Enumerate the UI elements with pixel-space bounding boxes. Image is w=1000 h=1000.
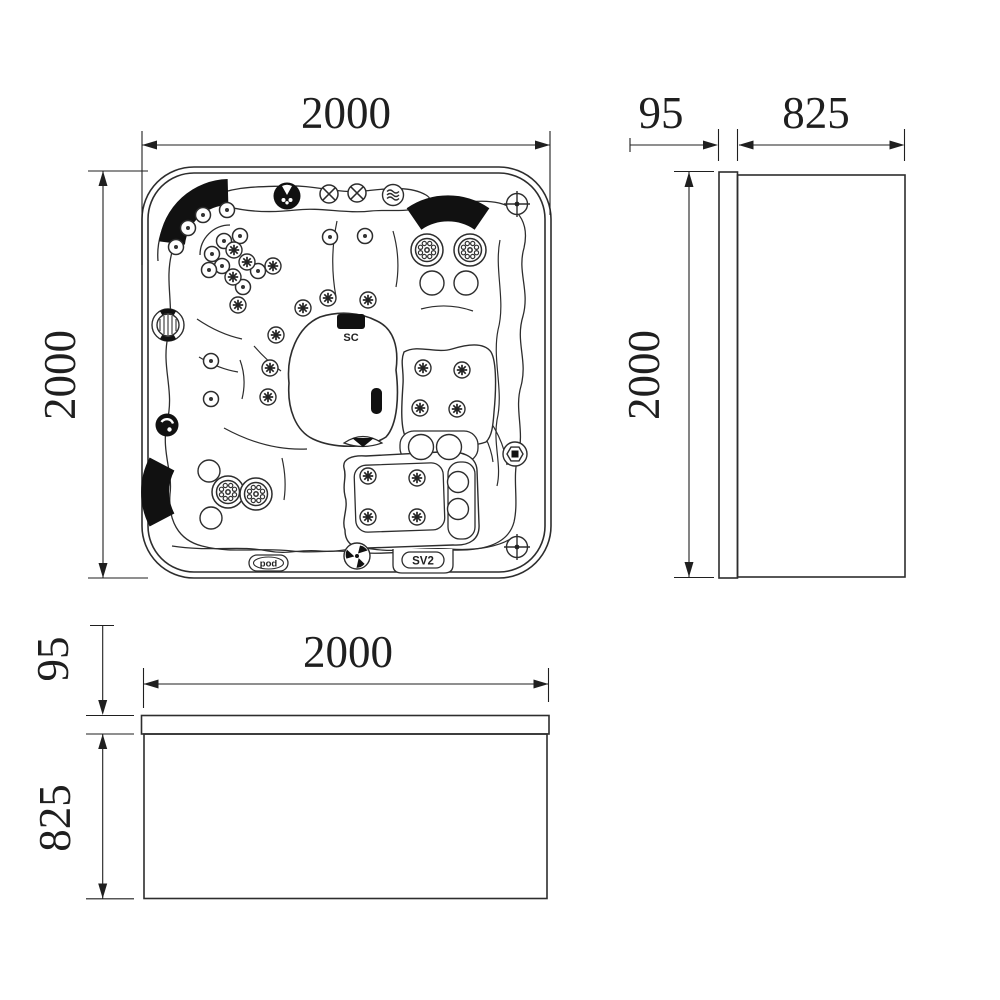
dim-label-top-length: 2000 <box>35 330 85 420</box>
massage-jet-icon <box>205 247 220 262</box>
dim-label-top-width: 2000 <box>301 88 391 138</box>
control-panel <box>337 314 365 329</box>
air-jet-icon <box>239 254 255 270</box>
air-jet-icon <box>225 269 241 285</box>
massage-jet-icon <box>233 229 248 244</box>
cabinet-profile <box>738 175 906 577</box>
speaker-icon <box>274 183 301 210</box>
front-view: 2000 95 825 <box>28 626 549 899</box>
air-valve-icon <box>320 185 338 203</box>
massage-jet-icon <box>202 263 217 278</box>
massage-jet-icon <box>358 229 373 244</box>
corner-screw-icon <box>504 191 530 217</box>
dim-side-length: 2000 <box>619 172 714 578</box>
dim-label-front-width: 2000 <box>303 627 393 677</box>
dim-top-width: 2000 <box>142 88 550 265</box>
headrest-pillow <box>155 464 162 520</box>
dim-front-rim: 95 <box>28 626 134 735</box>
air-jet-icon <box>265 258 281 274</box>
rotary-jet-icon <box>454 234 486 266</box>
massage-jet-icon <box>196 208 211 223</box>
dim-front-width: 2000 <box>144 627 549 708</box>
dim-label-side-rim: 95 <box>639 88 684 138</box>
air-valve-icon <box>348 184 366 202</box>
plain-jet-icon <box>448 499 469 520</box>
rotary-jet-icon <box>411 234 443 266</box>
air-jet-icon <box>409 509 425 525</box>
massage-jet-icon <box>204 392 219 407</box>
rim-profile <box>719 172 738 578</box>
plain-jet-icon <box>448 472 469 493</box>
waterfall-control-icon <box>383 185 404 206</box>
recliner-seat-outline <box>402 345 496 446</box>
air-jet-icon <box>412 400 428 416</box>
air-jet-icon <box>454 362 470 378</box>
dim-label-front-rim: 95 <box>28 637 78 682</box>
cabinet-front <box>144 734 547 899</box>
plain-jet-icon <box>198 460 220 482</box>
air-jet-icon <box>415 360 431 376</box>
air-jet-icon <box>260 389 276 405</box>
side-view: 95 825 2000 <box>619 88 905 578</box>
side-control <box>371 388 382 414</box>
air-jet-icon <box>230 297 246 313</box>
drain-fitting-icon <box>503 442 527 466</box>
dim-label-side-length: 2000 <box>619 330 669 420</box>
massage-jet-icon <box>204 354 219 369</box>
rotary-jet-icon <box>240 478 272 510</box>
massage-jet-icon <box>220 203 235 218</box>
air-jet-icon <box>262 360 278 376</box>
top-view: SC SV2 pod <box>35 88 551 578</box>
air-jet-icon <box>360 509 376 525</box>
massage-jet-icon <box>323 230 338 245</box>
air-jet-icon <box>268 327 284 343</box>
air-jet-icon <box>409 470 425 486</box>
valve-tag-label: SV2 <box>412 556 434 568</box>
rotary-jet-icon <box>212 476 244 508</box>
dim-front-height: 825 <box>30 734 134 899</box>
dim-side-rim: 95 <box>630 88 738 161</box>
air-jet-icon <box>320 290 336 306</box>
spa-dimension-drawing: SC SV2 pod <box>0 0 1000 1000</box>
dim-side-depth: 825 <box>739 88 905 161</box>
air-jet-icon <box>295 300 311 316</box>
plain-jet-icon <box>454 271 478 295</box>
turbo-jet-icon <box>152 309 184 341</box>
headrest-pillow <box>414 208 482 219</box>
air-jet-icon <box>360 292 376 308</box>
air-jet-icon <box>360 468 376 484</box>
massage-jet-icon <box>181 221 196 236</box>
air-jet-icon <box>449 401 465 417</box>
audio-dock-label: pod <box>260 559 278 570</box>
dim-top-length: 2000 <box>35 171 148 578</box>
plain-jet-icon <box>409 435 434 460</box>
plain-jet-icon <box>420 271 444 295</box>
massage-jet-icon <box>169 240 184 255</box>
plain-jet-icon <box>437 435 462 460</box>
rim-front <box>142 716 550 735</box>
air-jet-icon <box>226 242 242 258</box>
technical-drawing-canvas: SC SV2 pod <box>0 0 1000 1000</box>
dim-label-side-depth: 825 <box>782 88 850 138</box>
plain-jet-icon <box>200 507 222 529</box>
suction-fitting-icon <box>156 414 179 437</box>
control-panel-label: SC <box>343 332 358 344</box>
rotary-valve-icon <box>343 543 370 570</box>
corner-screw-icon <box>504 534 530 560</box>
dim-label-front-height: 825 <box>30 784 80 852</box>
